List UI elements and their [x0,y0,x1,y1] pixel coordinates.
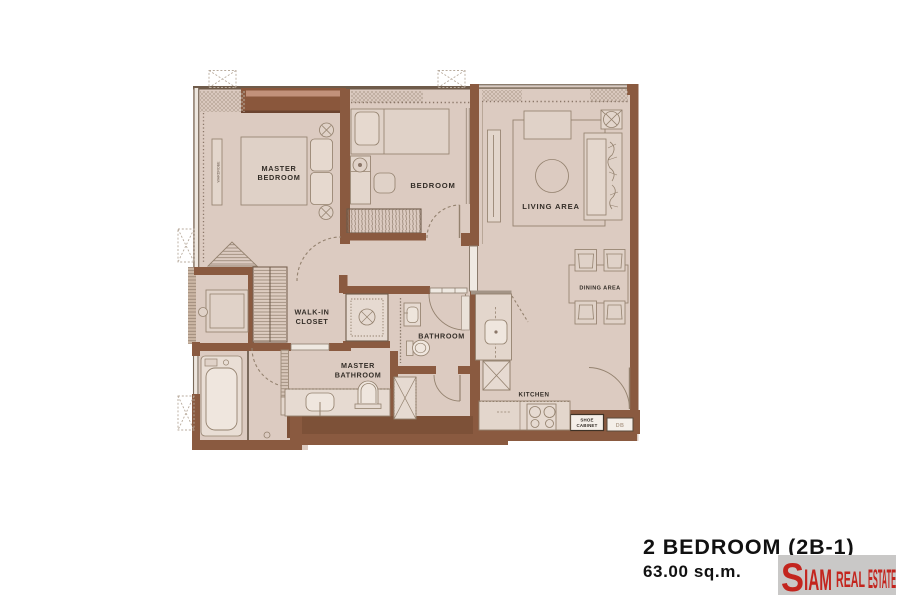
svg-text:63.00 sq.m.: 63.00 sq.m. [643,562,741,581]
svg-text:MASTER: MASTER [341,361,375,370]
svg-text:BEDROOM: BEDROOM [410,181,455,190]
svg-text:WARDROBE: WARDROBE [217,161,221,183]
svg-text:SHOE: SHOE [580,418,593,423]
svg-text:REAL: REAL [836,567,865,592]
svg-text:IAM: IAM [804,564,832,597]
svg-text:BATHROOM: BATHROOM [418,332,465,341]
svg-text:LIVING AREA: LIVING AREA [522,202,579,211]
svg-text:WALK-IN: WALK-IN [295,308,330,317]
svg-text:CLOSET: CLOSET [296,317,329,326]
svg-text:DINING AREA: DINING AREA [579,286,620,292]
svg-text:DB: DB [616,423,624,429]
svg-text:MASTER: MASTER [261,164,296,173]
svg-text:BEDROOM: BEDROOM [257,173,300,182]
svg-text:ESTATE: ESTATE [868,564,896,594]
svg-text:CABINET: CABINET [577,423,598,428]
svg-text:BATHROOM: BATHROOM [335,371,382,380]
svg-text:S: S [781,556,804,599]
svg-text:KITCHEN: KITCHEN [519,392,550,399]
